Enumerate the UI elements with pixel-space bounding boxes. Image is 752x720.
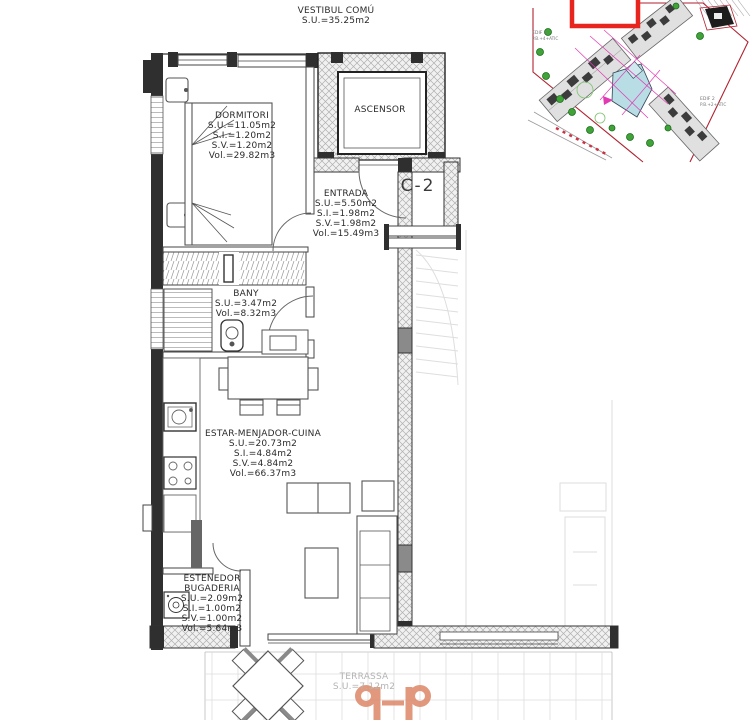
- neighbour-unit-faint: [416, 230, 612, 632]
- room-stat: S.I.=1.00m2: [181, 604, 243, 614]
- room-name: BANY: [215, 289, 277, 299]
- common-area-name: VESTIBUL COMÚ: [298, 6, 375, 16]
- room-name: ESTENEDOR: [181, 574, 243, 584]
- room-name: ASCENSOR: [354, 105, 405, 115]
- room-stat: S.I.=1.98m2: [313, 209, 380, 219]
- unit-label: C-2: [401, 177, 436, 195]
- room-stat: Vol.=29.82m3: [208, 151, 276, 161]
- room-stat: S.V.=1.00m2: [181, 614, 243, 624]
- room-label-entrada: ENTRADA S.U.=5.50m2 S.I.=1.98m2 S.V.=1.9…: [313, 189, 380, 239]
- room-label-estar-menjador-cuina: ESTAR-MENJADOR-CUINA S.U.=20.73m2 S.I.=4…: [205, 429, 321, 479]
- room-name: ENTRADA: [313, 189, 380, 199]
- room-stat: S.I.=1.20m2: [208, 131, 276, 141]
- room-stat: Vol.=5.64m3: [181, 624, 243, 634]
- site-label-edif3-floors: P.B.+4+ATIC: [532, 36, 558, 41]
- room-stat: S.U.=7.12m2: [333, 682, 395, 692]
- room-name: DORMITORI: [208, 111, 276, 121]
- room-stat: S.V.=1.20m2: [208, 141, 276, 151]
- room-name: ESTAR-MENJADOR-CUINA: [205, 429, 321, 439]
- site-plan-map: EDIF 3 P.B.+4+ATIC EDIF 2 P.B.+2+ATIC: [528, 0, 752, 163]
- bedroom-furniture: [166, 78, 272, 245]
- room-stat: S.V.=1.98m2: [313, 219, 380, 229]
- kitchen-fixtures: [163, 358, 202, 568]
- room-label-terrassa: TERRASSA S.U.=7.12m2: [333, 672, 395, 692]
- room-stat: S.U.=20.73m2: [205, 439, 321, 449]
- room-label-bany: BANY S.U.=3.47m2 Vol.=8.32m3: [215, 289, 277, 319]
- floorplan-sheet: EDIF 3 P.B.+4+ATIC EDIF 2 P.B.+2+ATIC VE…: [0, 0, 752, 720]
- room-label-estenedor-bugaderia: ESTENEDOR BUGADERIA S.U.=2.09m2 S.I.=1.0…: [181, 574, 243, 634]
- room-stat: S.U.=5.50m2: [313, 199, 380, 209]
- common-area-label: VESTIBUL COMÚ S.U.=35.25m2: [298, 6, 375, 26]
- common-area-stat: S.U.=35.25m2: [298, 16, 375, 26]
- room-label-dormitori: DORMITORI S.U.=11.05m2 S.I.=1.20m2 S.V.=…: [208, 111, 276, 161]
- room-name: TERRASSA: [333, 672, 395, 682]
- room-stat: S.U.=11.05m2: [208, 121, 276, 131]
- room-stat: S.U.=3.47m2: [215, 299, 277, 309]
- room-stat: S.I.=4.84m2: [205, 449, 321, 459]
- room-stat: S.V.=4.84m2: [205, 459, 321, 469]
- room-name: BUGADERIA: [181, 584, 243, 594]
- room-stat: Vol.=66.37m3: [205, 469, 321, 479]
- room-stat: S.U.=2.09m2: [181, 594, 243, 604]
- unit-code: C-2: [401, 177, 436, 195]
- site-label-edif2-floors: P.B.+2+ATIC: [700, 102, 726, 107]
- room-stat: Vol.=8.32m3: [215, 309, 277, 319]
- room-label-ascensor: ASCENSOR: [354, 105, 405, 115]
- terrace-table-set: [232, 647, 303, 720]
- room-stat: Vol.=15.49m3: [313, 229, 380, 239]
